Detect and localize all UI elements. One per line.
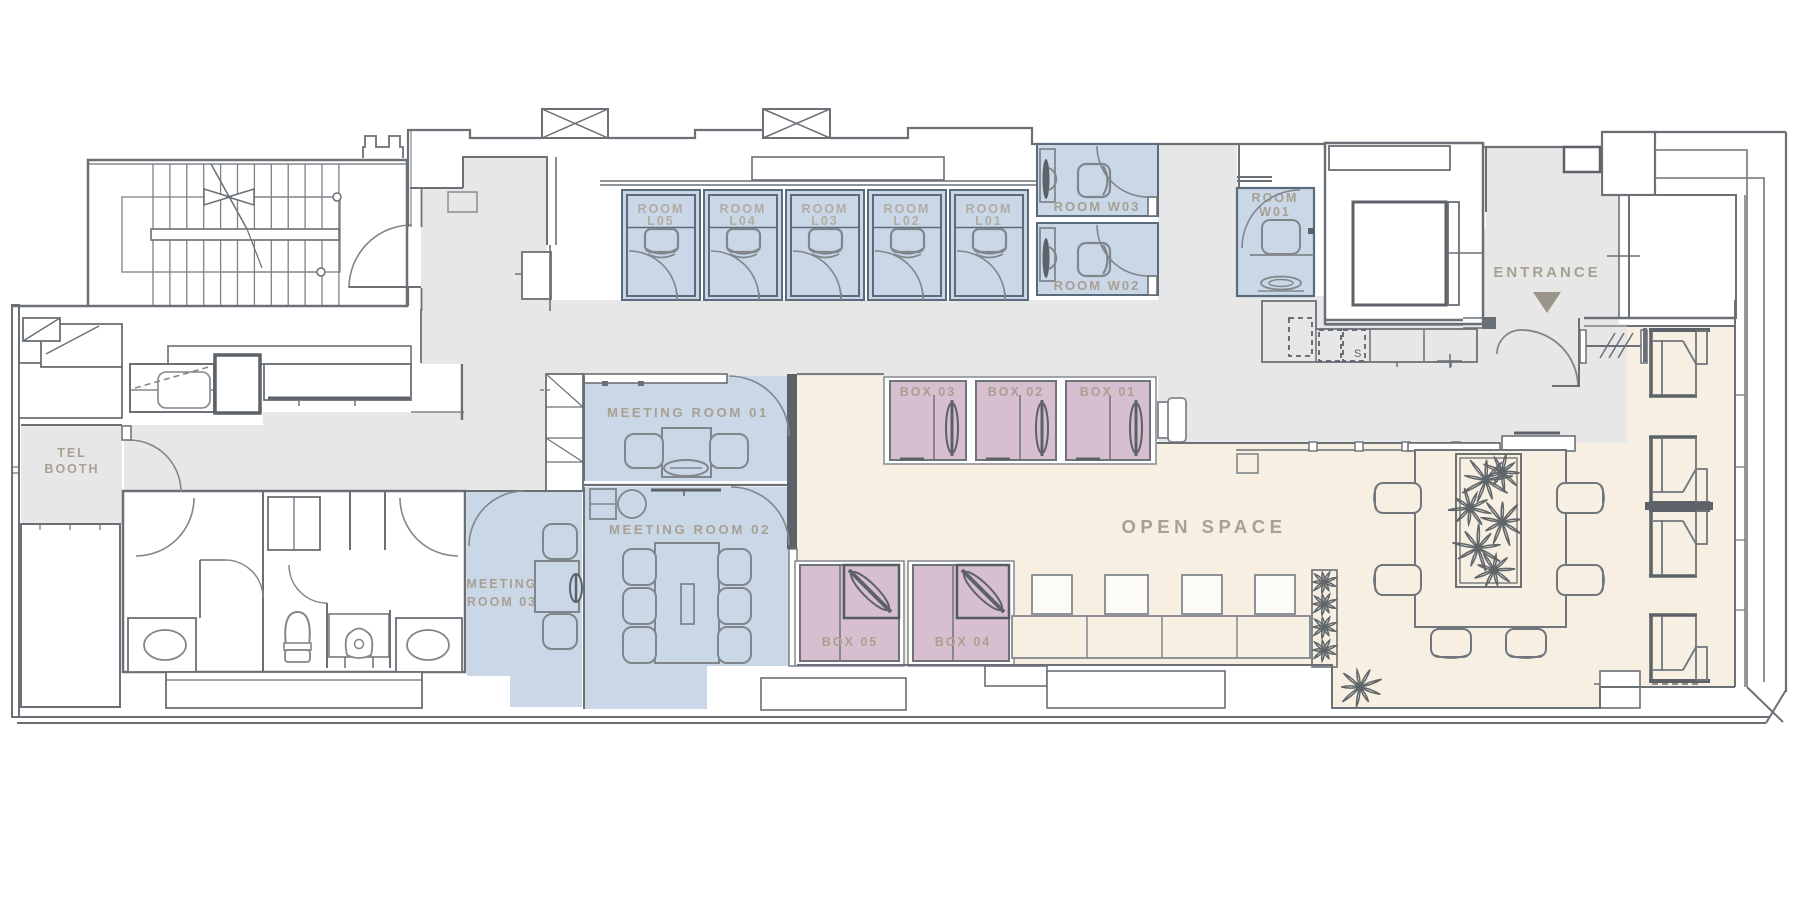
svg-text:BOOTH: BOOTH [44,462,99,476]
svg-text:ROOM W02: ROOM W02 [1054,278,1141,293]
svg-text:L01: L01 [975,214,1003,228]
svg-text:L05: L05 [647,214,675,228]
svg-text:TEL: TEL [57,446,87,460]
svg-text:OPEN SPACE: OPEN SPACE [1122,516,1287,537]
svg-text:BOX 02: BOX 02 [988,385,1044,399]
svg-text:BOX 05: BOX 05 [822,635,878,649]
svg-text:MEETING ROOM 02: MEETING ROOM 02 [609,522,771,537]
svg-text:ROOM 03: ROOM 03 [467,595,537,609]
svg-text:BOX 01: BOX 01 [1080,385,1136,399]
svg-text:L04: L04 [729,214,757,228]
svg-text:L03: L03 [811,214,839,228]
svg-text:MEETING: MEETING [467,577,538,591]
svg-text:ROOM W03: ROOM W03 [1054,199,1141,214]
svg-text:BOX 04: BOX 04 [935,635,991,649]
svg-text:ENTRANCE: ENTRANCE [1493,264,1600,281]
svg-text:ROOM: ROOM [1252,191,1299,205]
svg-text:S: S [1354,348,1361,360]
svg-text:BOX 03: BOX 03 [900,385,956,399]
svg-text:L02: L02 [893,214,921,228]
svg-text:W01: W01 [1259,205,1291,219]
svg-text:MEETING ROOM 01: MEETING ROOM 01 [607,405,769,420]
